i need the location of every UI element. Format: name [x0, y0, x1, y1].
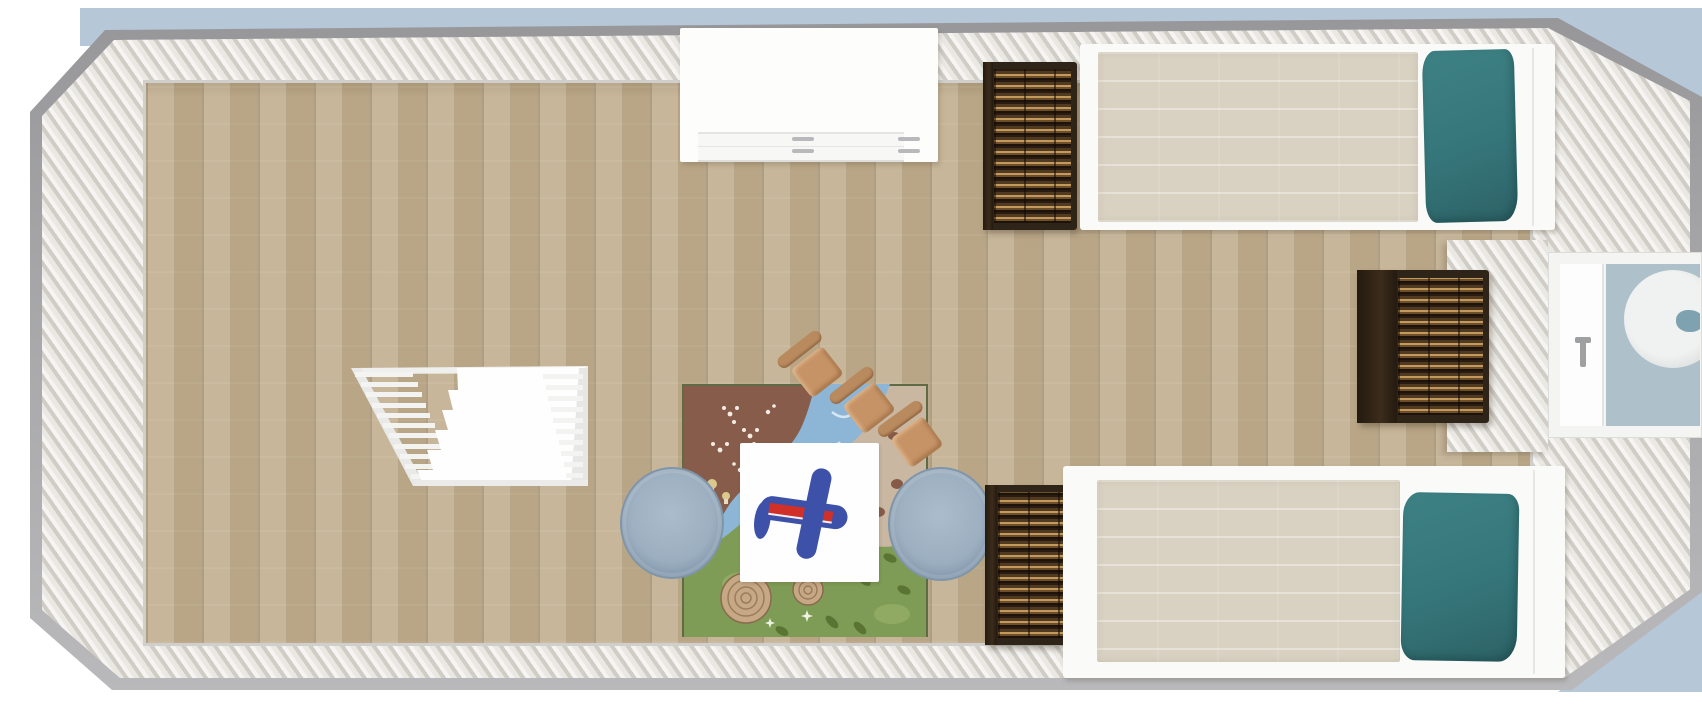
headboard-line	[1533, 470, 1535, 674]
stool-left[interactable]	[620, 467, 724, 579]
wicker-chest-middle[interactable]	[1357, 270, 1489, 423]
pillow	[1401, 492, 1520, 662]
pillow	[1422, 49, 1518, 223]
window-glass	[1606, 264, 1700, 426]
wicker-side	[983, 62, 993, 230]
drawer-handle	[792, 137, 814, 141]
wicker-weave	[994, 69, 1071, 223]
duvet	[1097, 480, 1400, 662]
drawer-handle	[792, 149, 814, 153]
crib-mattress	[417, 367, 585, 484]
pool-water	[1676, 310, 1700, 332]
wicker-side	[985, 485, 997, 645]
crib[interactable]	[345, 364, 590, 490]
window[interactable]	[1548, 252, 1702, 438]
wicker-chest-top[interactable]	[983, 62, 1077, 230]
toy-airplane[interactable]	[755, 463, 864, 565]
dresser-drawer-fronts	[698, 132, 904, 162]
bed-top[interactable]	[1080, 44, 1555, 230]
bed-bottom[interactable]	[1063, 466, 1565, 678]
headboard-line	[1532, 48, 1534, 226]
drawer-handle	[898, 149, 920, 153]
stool-right[interactable]	[888, 467, 994, 581]
window-handle-icon	[1580, 341, 1586, 367]
duvet	[1098, 52, 1418, 222]
wicker-weave	[1398, 278, 1483, 415]
drawer-handle	[898, 137, 920, 141]
dresser-white[interactable]	[680, 28, 938, 162]
outdoor-round-pool	[1624, 270, 1700, 368]
floorplan-viewport	[0, 0, 1702, 718]
wicker-side	[1357, 270, 1397, 423]
crib-bottom-rail	[415, 480, 588, 486]
